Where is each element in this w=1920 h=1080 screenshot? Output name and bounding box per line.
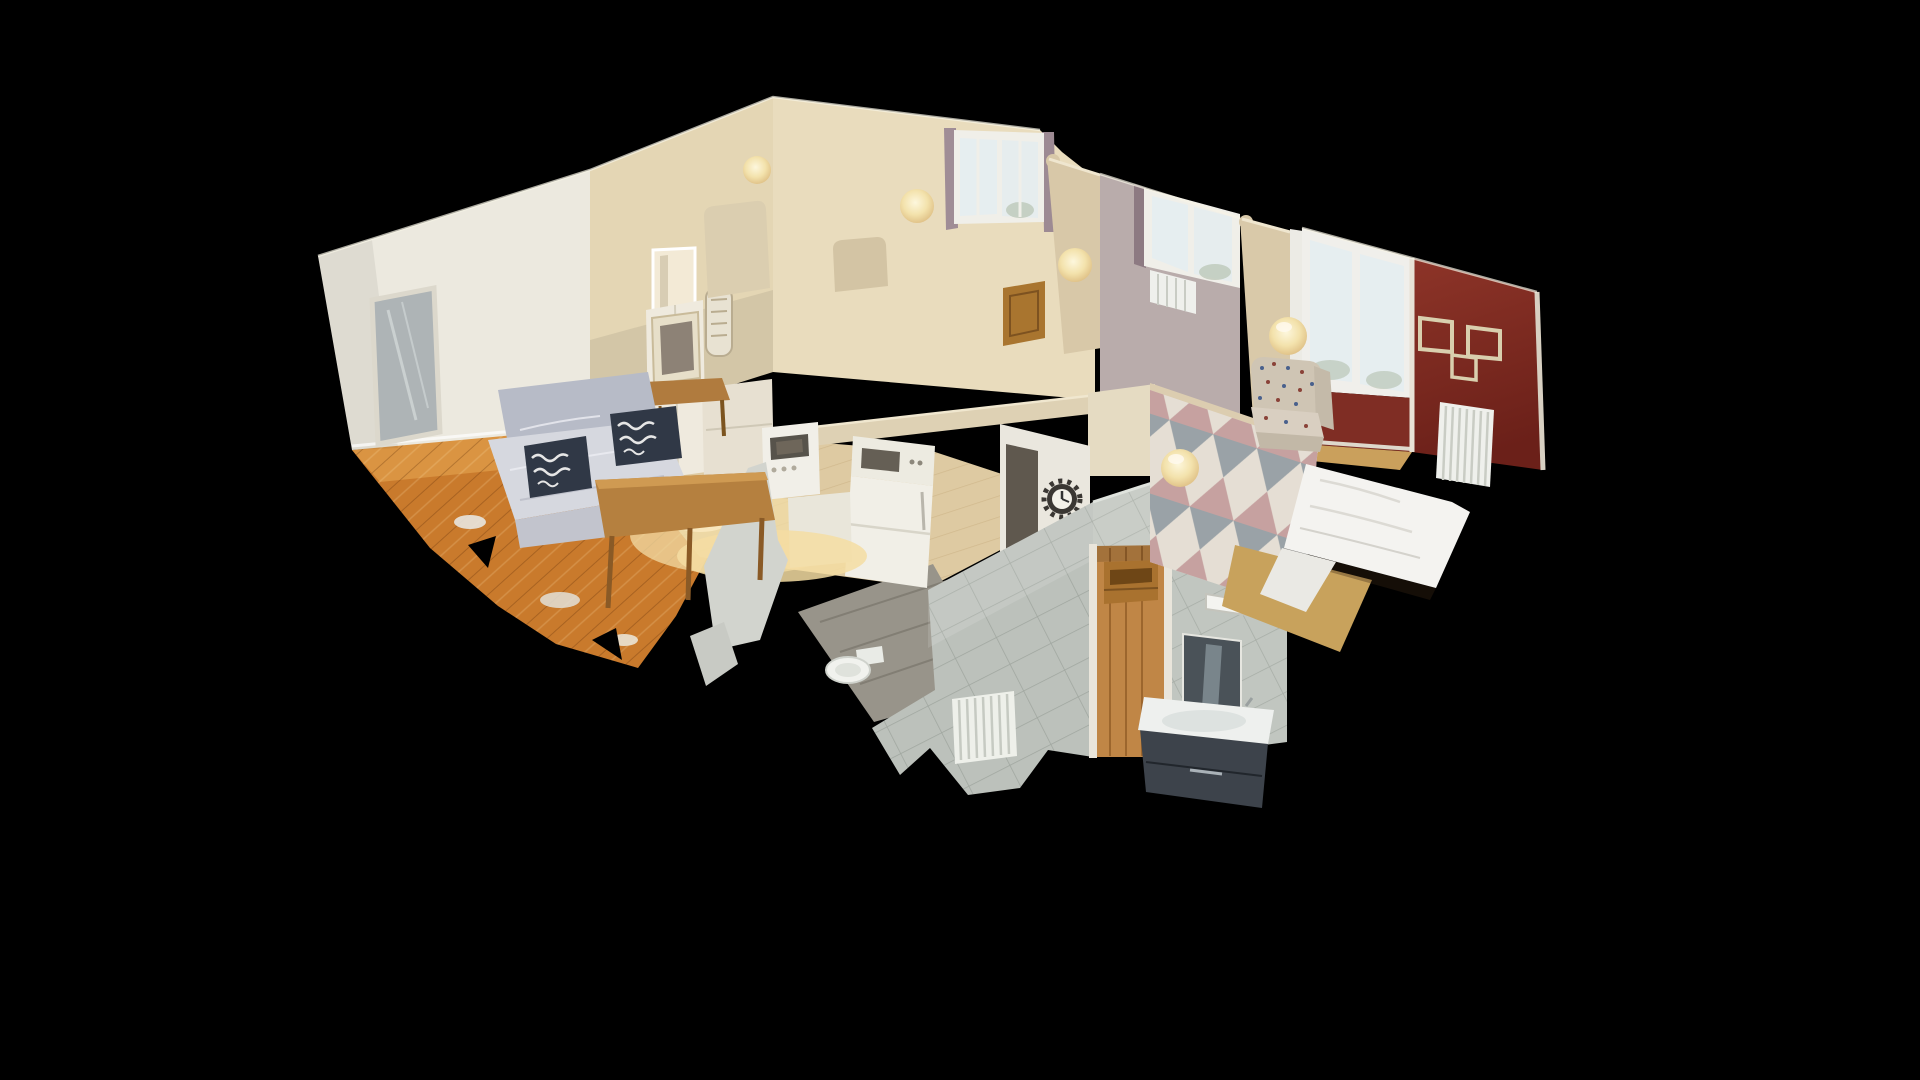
hall-wall-filler — [1088, 384, 1155, 476]
wooden-shelf-unit — [1104, 560, 1158, 604]
kitchen-oven — [762, 422, 820, 500]
vanity-sink — [1138, 697, 1274, 808]
patterned-cushion-1 — [524, 436, 592, 498]
wall-lamp-1 — [743, 156, 771, 184]
wall-vent-grille — [706, 288, 732, 356]
rounded-cut-wall-2 — [833, 237, 888, 292]
dollhouse-canvas — [0, 0, 1920, 1080]
patterned-cushion-2 — [610, 406, 682, 466]
fridge — [845, 476, 933, 588]
radiator-right-bedroom — [1436, 402, 1494, 487]
living-room-mirror — [372, 288, 440, 444]
dollhouse-viewport[interactable] — [0, 0, 1920, 1080]
wall-lamp-3 — [1058, 248, 1092, 282]
armchair — [1251, 357, 1334, 452]
rounded-cut-wall-1 — [704, 201, 770, 298]
middle-bedroom-door — [1003, 281, 1045, 346]
window-middle-bedroom — [944, 128, 1056, 232]
radiator-bathroom — [952, 691, 1017, 764]
wall-lamp-2 — [900, 189, 934, 223]
